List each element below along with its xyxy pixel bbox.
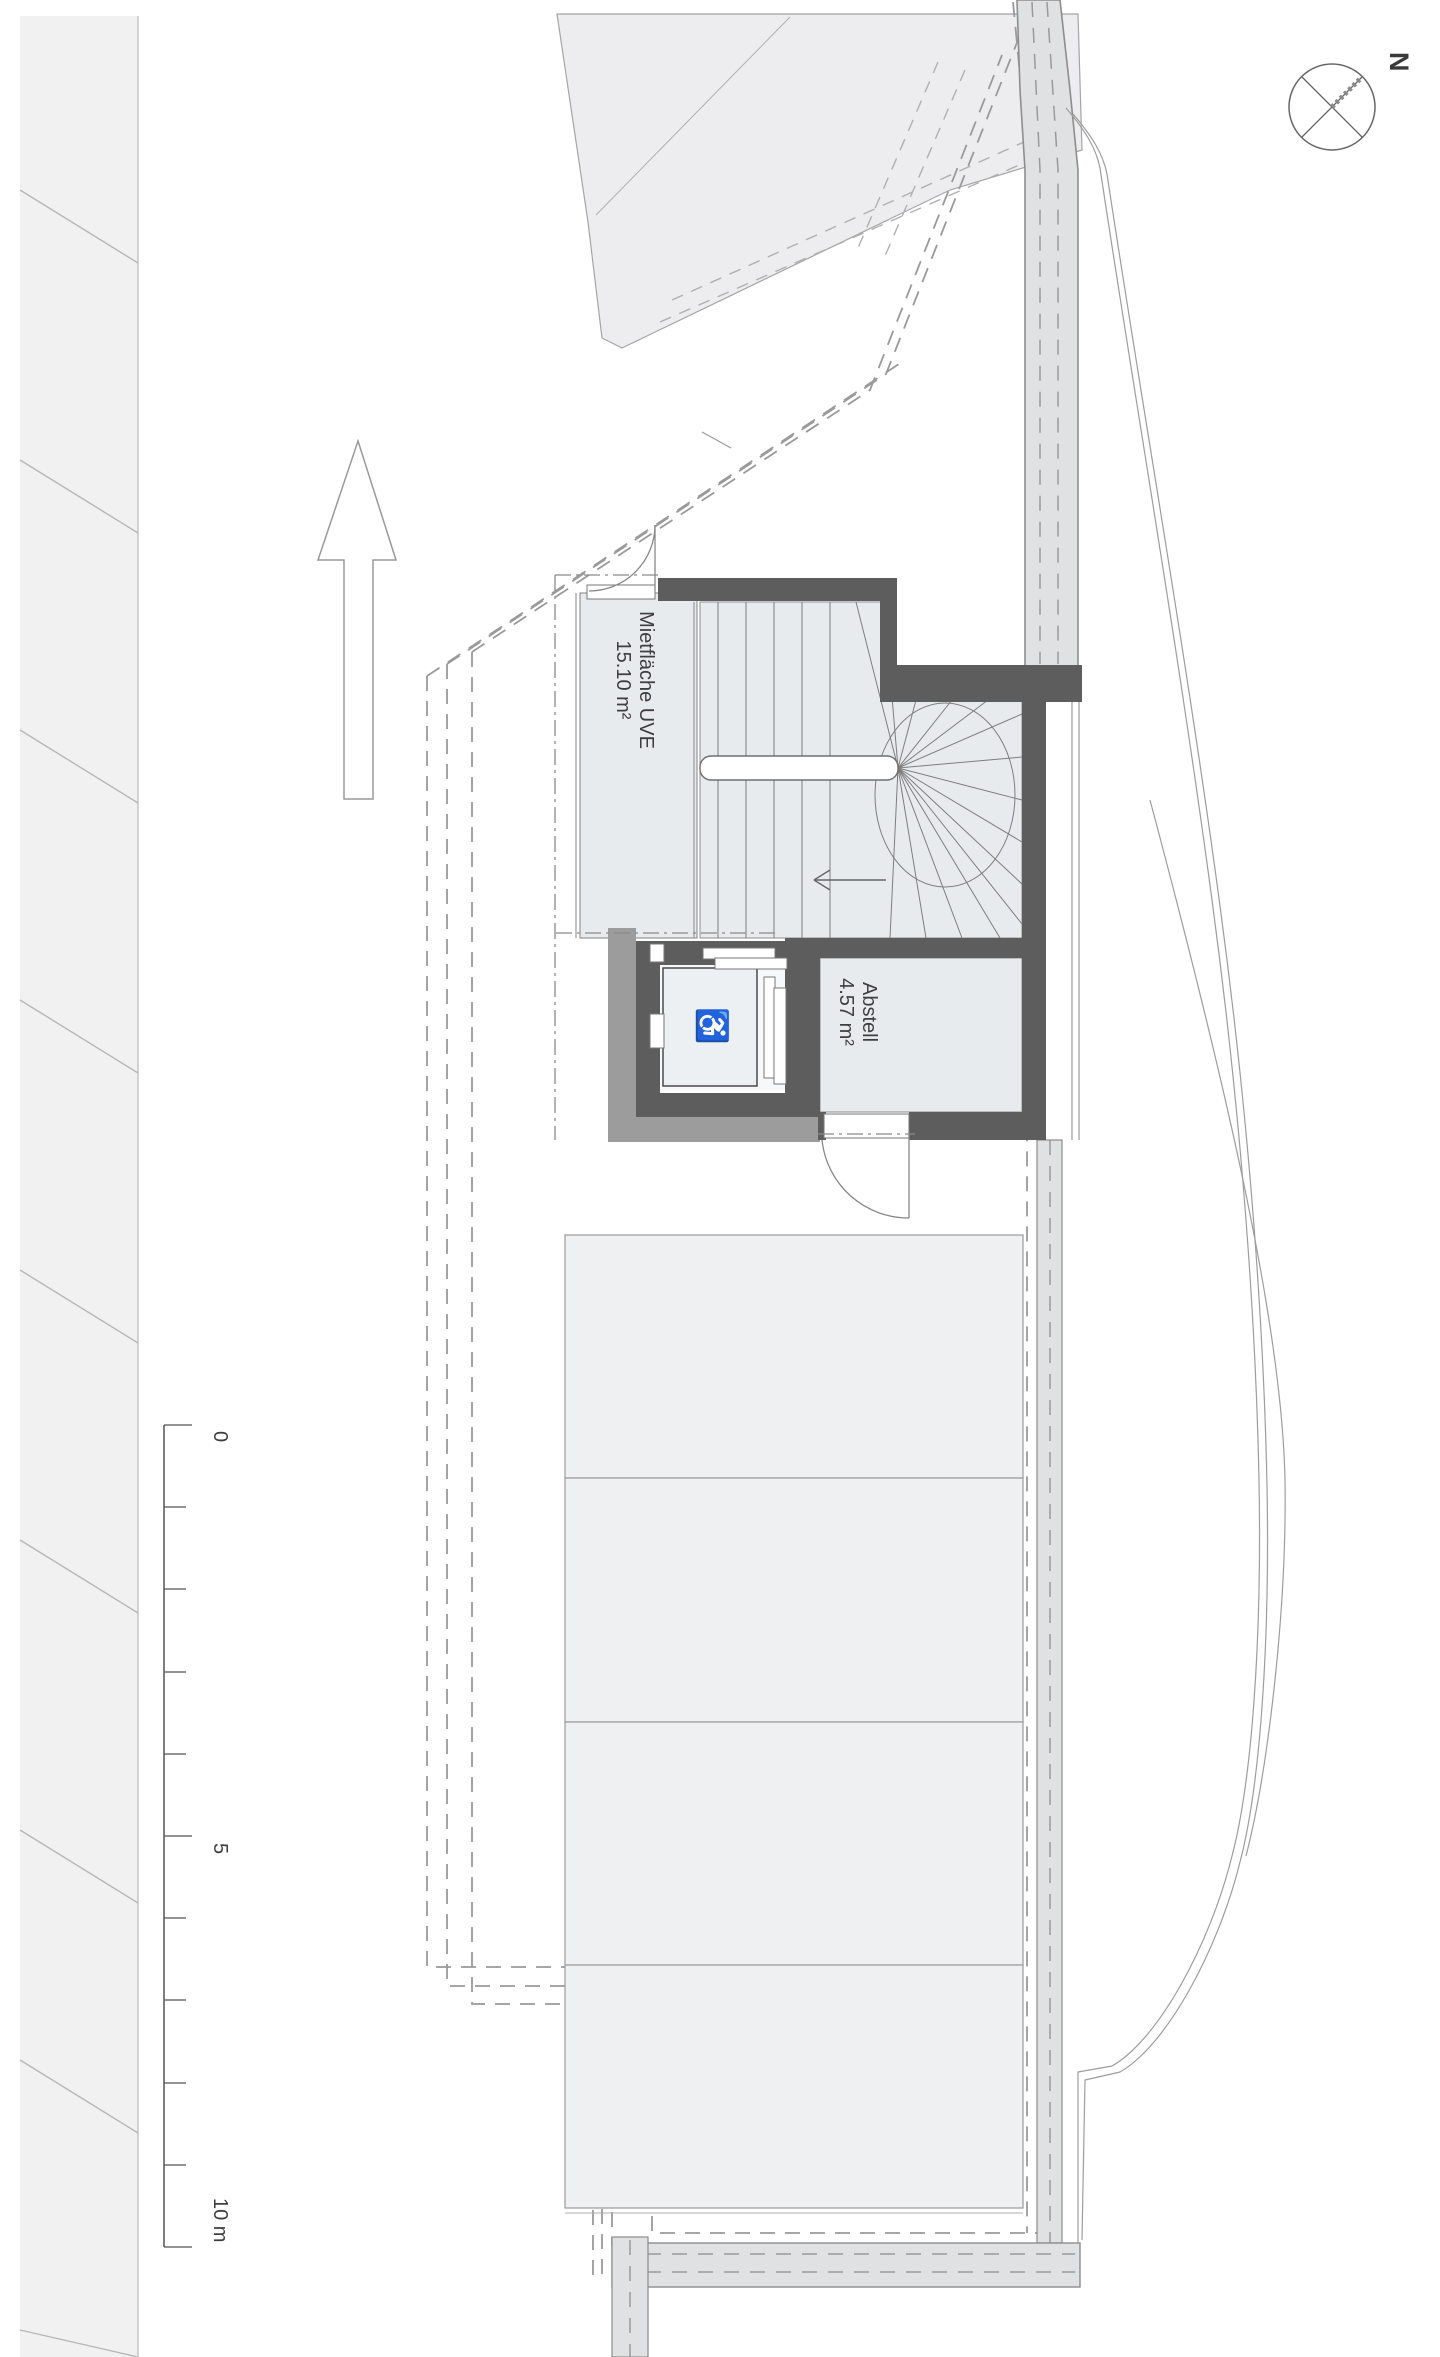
parking-space [565,1722,1023,1965]
parking-space [565,1235,1023,1478]
left-sidewalk-band [20,16,138,2357]
scale-label-0: 0 [209,1431,231,1442]
wheelchair-icon: ♿ [695,1007,730,1044]
entry-door-sill [587,585,655,599]
parking-space [565,1965,1023,2208]
floor-plan-svg: ♿ Mietfläche UVE 15.10 m² Abstell 4.57 m… [0,0,1440,2357]
parking-spaces [565,1235,1023,2208]
elevator-door-rail [703,948,775,959]
room-label-abstell: Abstell 4.57 m² [835,978,880,1046]
scale-label-10m: 10 m [209,2198,231,2242]
elevator: ♿ [650,944,787,1090]
parking-space [565,1478,1023,1722]
room-name: Mietfläche UVE [635,611,657,749]
north-label: N [1384,52,1414,72]
room-area: 4.57 m² [835,978,857,1046]
elevator-door-rail [764,977,775,1078]
stair-handrail [700,756,898,780]
abstell-door-sill [824,1114,909,1138]
scale-label-5: 5 [209,1843,231,1854]
room-name: Abstell [858,982,880,1042]
room-area: 15.10 m² [612,641,634,720]
elevator-door-rail [774,988,786,1084]
road-band-top [1017,0,1078,666]
elevator-door-rail [715,958,787,969]
